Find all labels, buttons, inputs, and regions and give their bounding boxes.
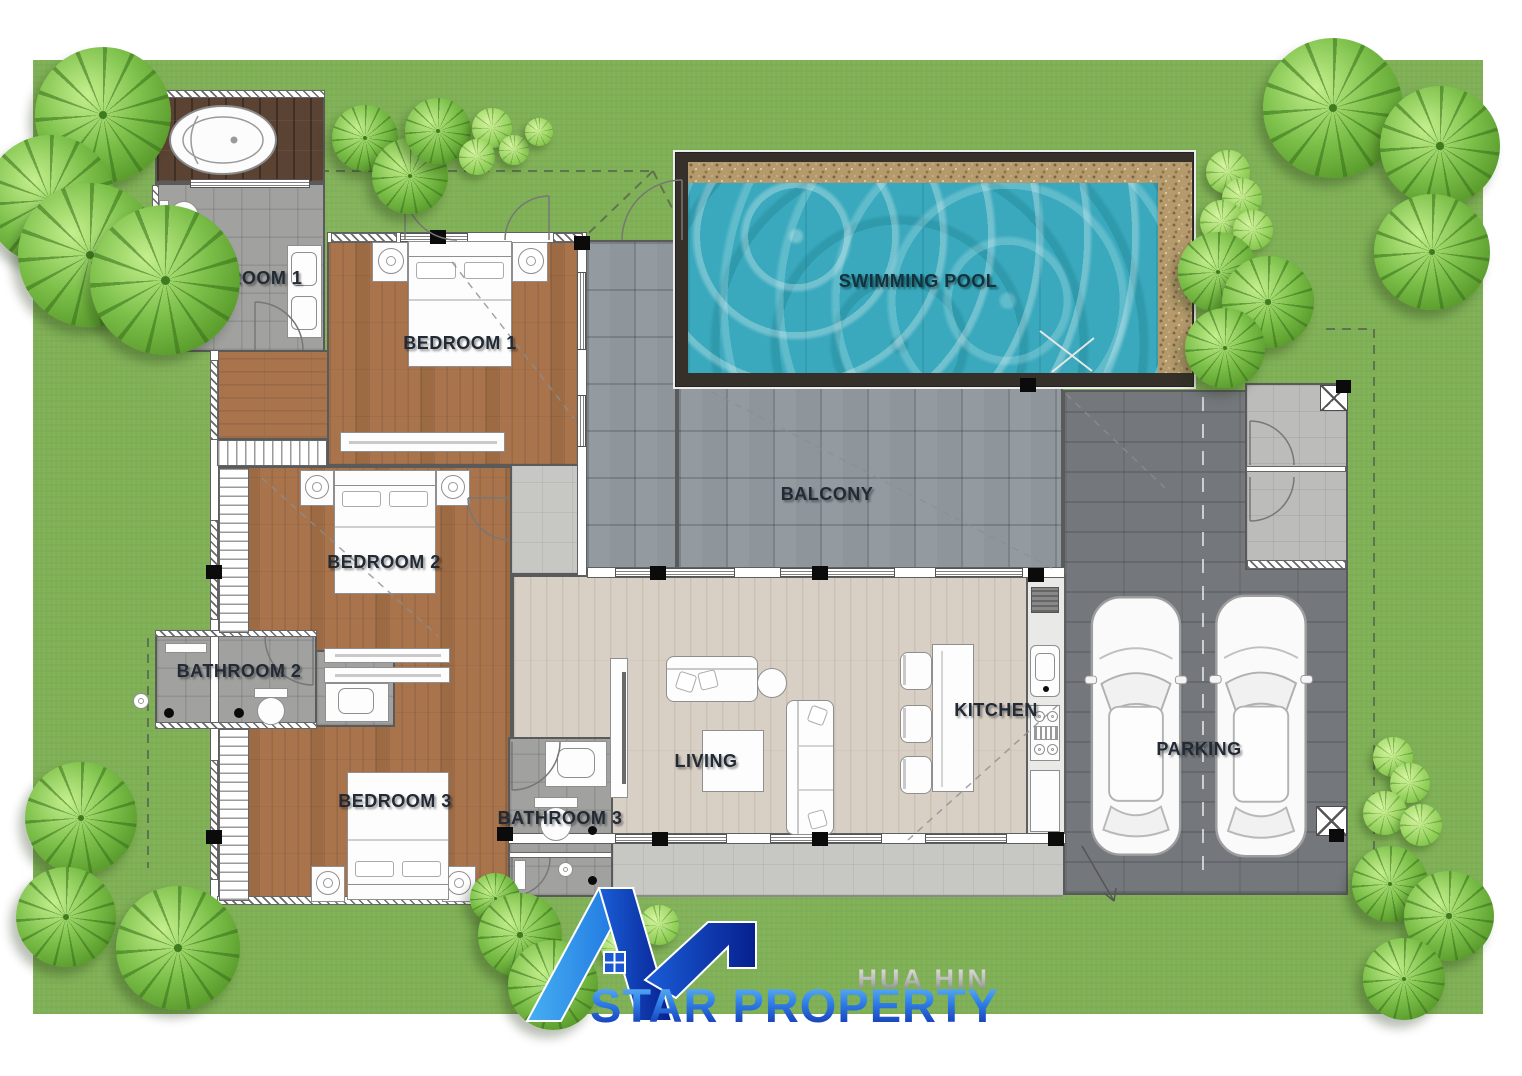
balcony-terrace-arm <box>585 240 677 575</box>
column-marker <box>1048 832 1064 846</box>
palm-tree <box>116 886 240 1010</box>
blanket-line <box>348 839 448 841</box>
stove-grill <box>1034 726 1058 740</box>
column-marker <box>1028 568 1044 582</box>
cabinet <box>324 667 450 683</box>
burner <box>1047 744 1058 755</box>
pillow <box>402 861 441 877</box>
blanket-line <box>335 526 435 528</box>
table-line <box>941 651 943 787</box>
cabinet-line <box>335 654 441 657</box>
column-marker <box>1336 380 1351 393</box>
window <box>935 568 1023 577</box>
cushion-line <box>799 789 833 791</box>
shrub <box>1400 804 1442 846</box>
lamp <box>447 871 471 895</box>
shower-head <box>558 862 573 877</box>
bed-mattress <box>347 772 449 884</box>
bathroom2-south-wall-hatch <box>155 722 317 729</box>
chaise-sofa <box>786 700 834 835</box>
dining-chair <box>900 652 932 690</box>
kitchen-sink <box>1030 645 1060 697</box>
column-marker <box>650 566 666 580</box>
dresser <box>340 432 505 452</box>
pillow <box>464 262 504 279</box>
shrub <box>525 118 553 146</box>
column-marker <box>812 566 828 580</box>
lamp <box>305 475 329 499</box>
room-label-bathroom-3: BATHROOM 3 <box>498 809 623 827</box>
room-label-balcony: BALCONY <box>781 485 874 503</box>
room-label-swimming-pool: SWIMMING POOL <box>839 272 998 290</box>
floor-drain <box>164 708 174 718</box>
room-label-kitchen: KITCHEN <box>954 701 1038 719</box>
wardrobe <box>219 729 249 901</box>
balcony-terrace-main <box>677 385 1063 575</box>
shower-bench <box>165 643 207 653</box>
throw-pillow <box>675 671 698 694</box>
wall-hatch <box>210 760 218 880</box>
kitchen-vent-grill <box>1031 587 1059 613</box>
toilet-bowl <box>257 697 285 725</box>
sink <box>338 688 374 714</box>
storage-divider-wall <box>1246 466 1346 472</box>
throw-pillow <box>807 705 829 727</box>
bed-headboard <box>334 470 436 486</box>
column-marker <box>574 236 590 250</box>
closet-strip <box>217 440 327 466</box>
window <box>577 395 586 447</box>
storage-room <box>1245 383 1348 570</box>
column-marker <box>652 832 668 846</box>
cabinet <box>324 648 450 663</box>
blanket-line <box>409 299 511 301</box>
sofa-back-line <box>797 701 799 834</box>
tv <box>622 672 626 784</box>
palm-tree <box>16 867 116 967</box>
wardrobe <box>219 468 249 633</box>
palm-tree <box>1374 194 1490 310</box>
pillow <box>389 491 428 507</box>
sink <box>291 296 317 330</box>
room-label-bathroom-2: BATHROOM 2 <box>177 662 302 680</box>
room-label-parking: PARKING <box>1156 740 1241 758</box>
window <box>190 179 310 188</box>
burner <box>1047 711 1058 722</box>
window <box>615 568 735 577</box>
window <box>780 568 895 577</box>
window <box>925 834 1007 843</box>
palm-tree <box>1185 308 1265 388</box>
corridor-floor <box>215 350 330 440</box>
deck-north-wall-hatch <box>155 90 325 98</box>
bed-headboard <box>408 241 512 257</box>
rear-terrace-strip <box>613 843 1063 897</box>
floor-plan-canvas: BATHROOM 1 BEDROOM 1 SWIMMING POOL BALCO… <box>0 0 1522 1076</box>
palm-tree <box>508 940 598 1030</box>
shower-head <box>133 693 149 709</box>
side-table <box>757 668 787 698</box>
column-marker <box>1020 378 1036 392</box>
dresser-handle-line <box>349 441 497 444</box>
cushion-line <box>799 745 833 747</box>
lamp <box>316 871 340 895</box>
room-label-bedroom-1: BEDROOM 1 <box>403 334 517 352</box>
window <box>615 834 727 843</box>
dining-chair <box>900 705 932 743</box>
wall-hatch <box>1247 560 1346 569</box>
sink <box>557 748 595 778</box>
throw-pillow <box>807 809 828 830</box>
chair-back <box>903 655 906 685</box>
column-marker <box>812 832 828 846</box>
chair-back <box>903 708 906 738</box>
pillow <box>416 262 456 279</box>
shrub <box>601 932 633 964</box>
wall-hatch <box>210 360 218 440</box>
kitchen-cabinet <box>1030 770 1060 832</box>
palm-tree <box>90 205 240 355</box>
column-marker <box>497 827 513 841</box>
parking-divider-line <box>1202 396 1204 870</box>
column-marker <box>206 830 222 844</box>
pool-pebble-border-top <box>688 162 1158 183</box>
floor-drain <box>234 708 244 718</box>
room-label-bedroom-3: BEDROOM 3 <box>338 792 452 810</box>
faucet <box>1043 686 1049 692</box>
lamp <box>441 475 465 499</box>
lamp <box>378 248 404 274</box>
shrub <box>499 135 529 165</box>
bed-headboard <box>347 884 449 900</box>
floor-drain <box>588 876 597 885</box>
palm-tree <box>1363 938 1445 1020</box>
palm-tree <box>25 762 137 874</box>
room-label-living: LIVING <box>674 752 737 770</box>
pillow <box>342 491 381 507</box>
dining-chair <box>900 756 932 794</box>
shrub <box>639 905 679 945</box>
sofa <box>666 656 758 702</box>
throw-pillow <box>697 669 719 691</box>
pillow <box>355 861 394 877</box>
palm-tree <box>1380 86 1500 206</box>
wall-hatch <box>331 233 397 242</box>
cabinet-line <box>335 674 441 677</box>
bathroom-3-divider <box>509 852 612 858</box>
column-marker <box>1329 829 1344 842</box>
bed-mattress <box>334 486 436 594</box>
bath1-outdoor-deck <box>155 93 325 183</box>
shrub <box>459 139 495 175</box>
window <box>577 272 586 350</box>
column-marker <box>430 230 446 244</box>
column-marker <box>206 565 222 579</box>
lamp <box>518 248 544 274</box>
sink-basin <box>1035 653 1055 681</box>
chair-back <box>903 759 906 789</box>
room-label-bedroom-2: BEDROOM 2 <box>327 553 441 571</box>
burner <box>1034 744 1045 755</box>
